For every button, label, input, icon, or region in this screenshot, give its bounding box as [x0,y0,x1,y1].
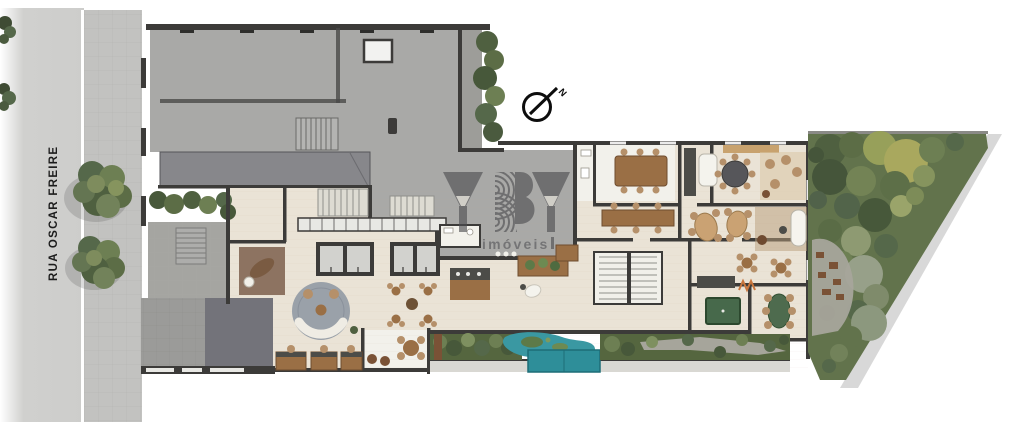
curb-marks [146,368,244,372]
bottom-garden-band [430,332,790,375]
lounge-chair [329,289,339,299]
round-dining-table [722,161,748,187]
stair-a [318,189,368,216]
watermark-subtitle: imóveis [482,236,550,252]
roof-skylight [364,40,392,62]
lounge-chair [303,289,313,299]
watermark-cursor-bar [551,237,554,249]
plant-pot [350,326,358,334]
low-garden-wall [430,361,790,372]
street-area: RUA OSCAR FREIRE [0,8,142,422]
left-wall-segments [141,58,146,226]
mailboxes [298,218,446,231]
garden-triangle [808,131,1002,388]
north-arrow: N [524,87,569,121]
sideboard [723,145,779,153]
north-arrow-needle [530,88,557,114]
wood-deck-strip [434,334,442,360]
roof-vent-box [388,118,397,134]
side-table [779,226,787,234]
entrance-canopy [158,152,372,189]
pouf [367,354,377,364]
garden-dining-room [762,294,796,329]
coffee-table [316,305,327,316]
vestibule-side-table [244,277,254,287]
white-sofa [791,210,806,246]
planting-bed-right [600,334,790,360]
driveway-dark [205,298,273,368]
roof-stair [296,118,338,150]
roof-wall-line-h [160,99,346,103]
street-asphalt [0,8,84,422]
elevator-bank-a [316,242,374,276]
north-arrow-label: N [556,87,569,100]
garden-top-wall [808,131,988,134]
stair-b [390,196,434,216]
entry-hedge [149,191,236,220]
courtyard-stair [176,228,206,264]
site-plan-svg: RUA OSCAR FREIRE [0,0,1024,422]
floor-plan-image: RUA OSCAR FREIRE [0,0,1024,422]
elevator-bank-b [390,242,440,276]
roof-top-wall [146,24,490,30]
pouf [380,356,390,366]
games-counter [697,276,735,288]
patio-table [403,340,419,356]
bath-stair-block [594,252,662,304]
kitchenette [450,268,490,300]
wardrobe [556,245,578,261]
roof-wall-line-v [336,28,340,103]
armchair [757,235,767,245]
roof-side-hedge [458,28,505,152]
entry-vestibule [239,247,285,295]
street-label: RUA OSCAR FREIRE [48,146,60,281]
